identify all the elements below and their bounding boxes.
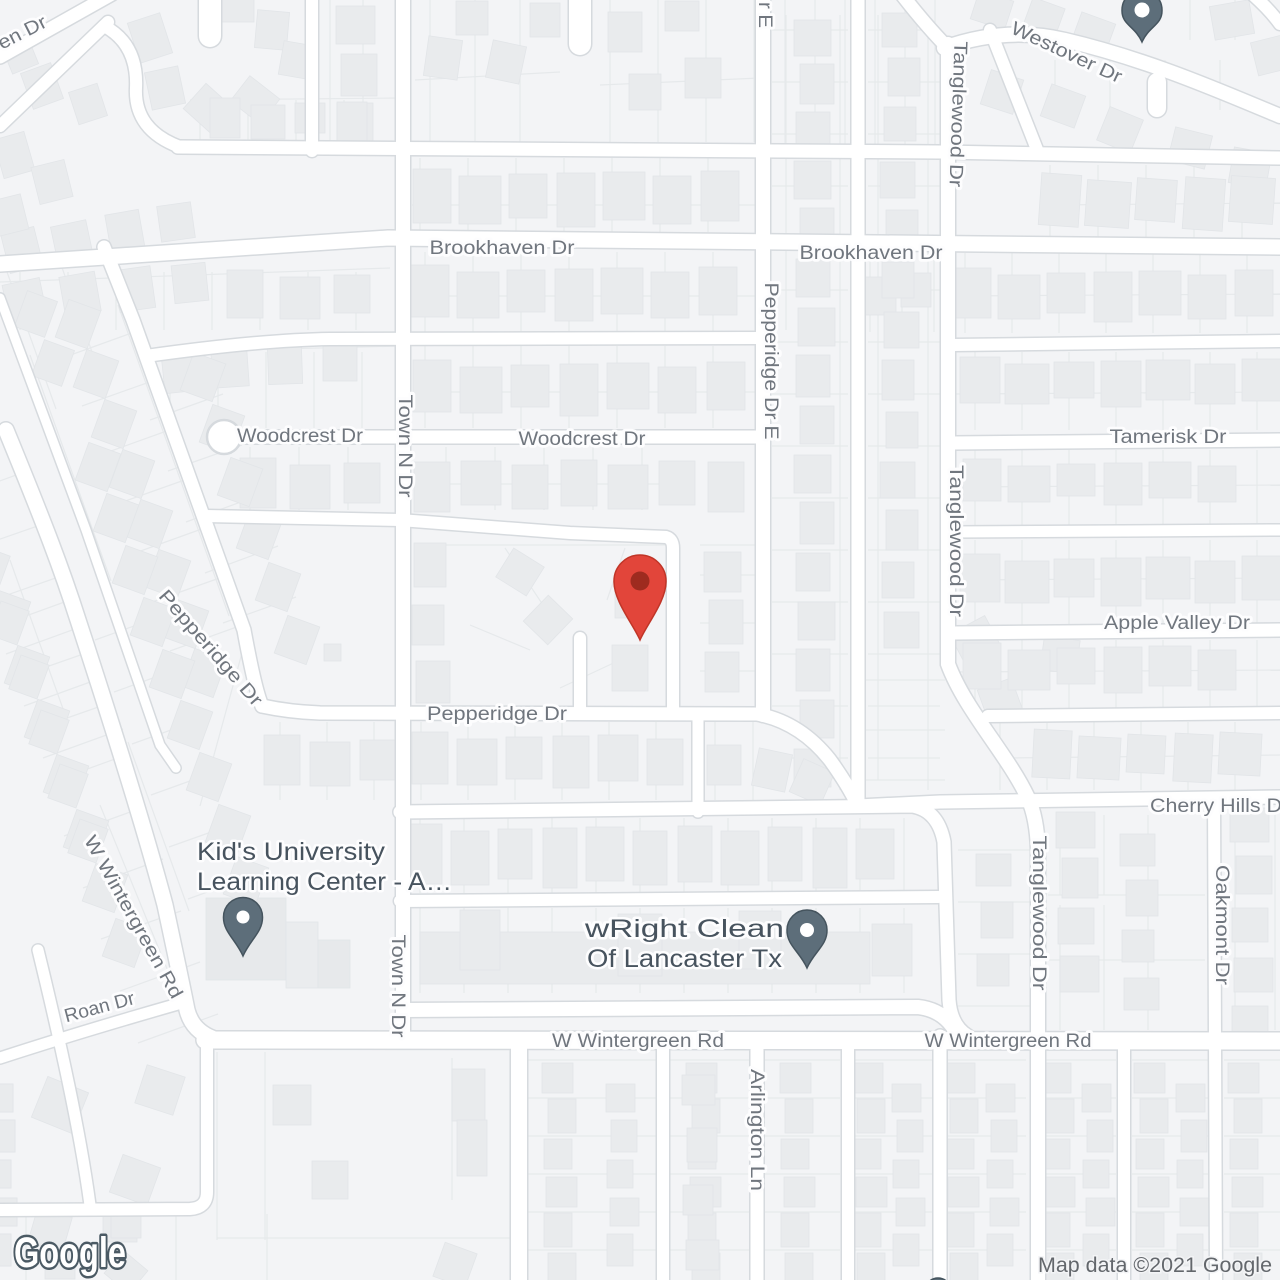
svg-text:Tanglewood Dr: Tanglewood Dr — [1028, 836, 1049, 992]
svg-text:Tamerisk Dr: Tamerisk Dr — [1110, 427, 1228, 448]
svg-text:Tanglewood Dr: Tanglewood Dr — [945, 465, 966, 618]
svg-text:Kid's University: Kid's University — [197, 838, 386, 866]
svg-text:Woodcrest Dr: Woodcrest Dr — [237, 426, 364, 447]
svg-text:Arlington Ln: Arlington Ln — [746, 1069, 767, 1191]
svg-text:Woodcrest Dr: Woodcrest Dr — [519, 429, 647, 450]
svg-text:Pepperidge Dr E: Pepperidge Dr E — [760, 283, 781, 440]
svg-text:Brookhaven Dr: Brookhaven Dr — [430, 238, 576, 259]
svg-text:Town N Dr: Town N Dr — [394, 395, 415, 499]
svg-text:wRight Clean: wRight Clean — [584, 915, 784, 943]
svg-text:Oakmont Dr: Oakmont Dr — [1211, 865, 1232, 986]
svg-text:Apple Valley Dr: Apple Valley Dr — [1104, 613, 1251, 634]
svg-text:r E: r E — [754, 2, 775, 28]
svg-text:Google: Google — [14, 1229, 126, 1277]
svg-text:W Wintergreen Rd: W Wintergreen Rd — [552, 1031, 724, 1052]
svg-text:Learning Center - A…: Learning Center - A… — [197, 868, 452, 896]
svg-text:W Wintergreen Rd: W Wintergreen Rd — [925, 1031, 1092, 1052]
svg-text:Cherry Hills D: Cherry Hills D — [1150, 796, 1280, 817]
svg-text:Town N Dr: Town N Dr — [387, 935, 408, 1039]
svg-text:Pepperidge Dr: Pepperidge Dr — [427, 704, 568, 725]
svg-text:Of Lancaster Tx: Of Lancaster Tx — [587, 945, 783, 973]
svg-text:Map data ©2021 Google: Map data ©2021 Google — [1038, 1254, 1272, 1277]
svg-text:Brookhaven Dr: Brookhaven Dr — [800, 243, 944, 264]
